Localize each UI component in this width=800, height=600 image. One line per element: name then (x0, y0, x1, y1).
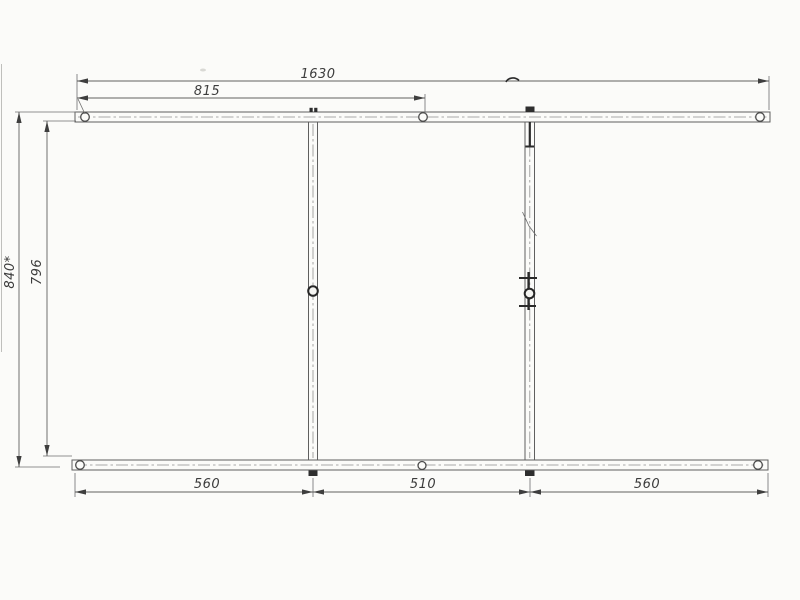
arrowhead-mid-left (313, 489, 324, 494)
arrowhead-right (758, 78, 769, 83)
right-post-bottom-clip (525, 471, 535, 477)
arrowhead-left (75, 489, 86, 494)
dim-label-top-half: 815 (194, 84, 220, 99)
arrowhead-down (44, 445, 49, 456)
dimension-left-overall: 840* (3, 112, 76, 467)
left-post (308, 108, 318, 476)
top-rail-hole-right (756, 113, 765, 122)
arrowhead-up (16, 112, 21, 123)
dim-label-bottom-center: 510 (410, 477, 436, 492)
dimension-top-overall: 1630 (77, 67, 769, 110)
left-post-top-clip (314, 108, 317, 112)
arrowhead-right (757, 489, 768, 494)
top-rail-hole-center (419, 113, 428, 122)
dim-label-left-overall: 840* (3, 255, 18, 288)
right-post-pivot-fitting (525, 289, 535, 299)
dim-label-bottom-left: 560 (194, 477, 220, 492)
bottom-rail-hole-right (754, 461, 763, 470)
dimension-top-half: 815 (77, 84, 425, 114)
dim-label-bottom-right: 560 (634, 477, 660, 492)
arrowhead-mid-left (302, 489, 313, 494)
dimension-left-inner: 796 (30, 121, 76, 456)
bottom-rail-hole-center (418, 462, 426, 470)
dim-label-top-overall: 1630 (300, 67, 335, 82)
drawing-sheet: 1630 815 840* 796 5 (0, 0, 800, 600)
left-post-bottom-clip (309, 471, 318, 477)
arrowhead-mid-right (530, 489, 541, 494)
arrowhead-down (16, 456, 21, 467)
bottom-rail-hole-left (76, 461, 85, 470)
left-post-pivot-fitting (308, 286, 318, 296)
right-post-bolt-head (526, 107, 535, 113)
scan-smudge (200, 69, 206, 72)
scan-artifacts (2, 64, 207, 352)
dimension-bottom-segments: 560 510 560 (75, 473, 768, 497)
dim-label-left-inner: 796 (30, 259, 45, 285)
arrowhead-left (77, 78, 88, 83)
left-post-top-clip (310, 108, 313, 112)
top-rail (75, 99, 770, 122)
arrowhead-up (44, 121, 49, 132)
arrowhead-mid-right (519, 489, 530, 494)
technical-drawing-canvas: 1630 815 840* 796 5 (0, 0, 800, 600)
arrowhead-right (414, 95, 425, 100)
bottom-rail (72, 460, 768, 470)
right-post (519, 107, 537, 477)
